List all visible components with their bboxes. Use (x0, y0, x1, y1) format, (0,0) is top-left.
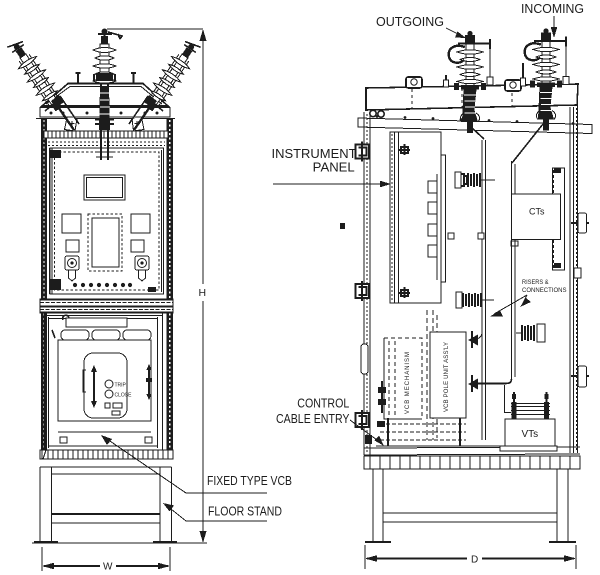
svg-text:PANEL: PANEL (313, 159, 355, 174)
svg-text:VTs: VTs (522, 429, 539, 440)
svg-text:CABLE ENTRY: CABLE ENTRY (276, 411, 350, 426)
svg-text:FIXED TYPE VCB: FIXED TYPE VCB (207, 473, 292, 488)
svg-text:CTs: CTs (529, 207, 545, 217)
svg-text:VCB POLE UNIT ASS'LY: VCB POLE UNIT ASS'LY (444, 342, 450, 412)
svg-text:CONNECTIONS: CONNECTIONS (522, 287, 567, 294)
svg-text:RISERS &: RISERS & (522, 279, 549, 286)
svg-text:TRIP: TRIP (115, 383, 127, 389)
svg-text:CLOSE: CLOSE (115, 393, 133, 399)
svg-text:OUTGOING: OUTGOING (376, 14, 444, 29)
svg-text:FLOOR STAND: FLOOR STAND (208, 504, 282, 519)
svg-text:W: W (103, 562, 113, 573)
svg-text:INCOMING: INCOMING (521, 1, 584, 16)
svg-text:VCB MECHANISM: VCB MECHANISM (405, 352, 411, 414)
svg-text:H: H (199, 287, 207, 299)
svg-text:D: D (471, 555, 478, 566)
svg-text:CONTROL: CONTROL (297, 396, 349, 411)
